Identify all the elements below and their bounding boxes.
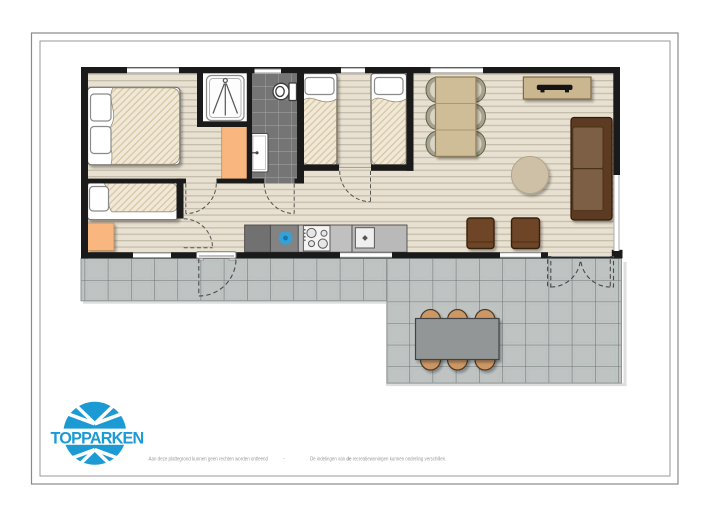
svg-text:Aan deze plattegrond kunnen ge: Aan deze plattegrond kunnen geen rechten… — [149, 456, 269, 462]
svg-text:-: - — [283, 456, 285, 462]
svg-text:TOPPARKEN: TOPPARKEN — [51, 429, 144, 447]
svg-text:De indelingen van de recreatie: De indelingen van de recreatiewoningen k… — [310, 456, 447, 462]
